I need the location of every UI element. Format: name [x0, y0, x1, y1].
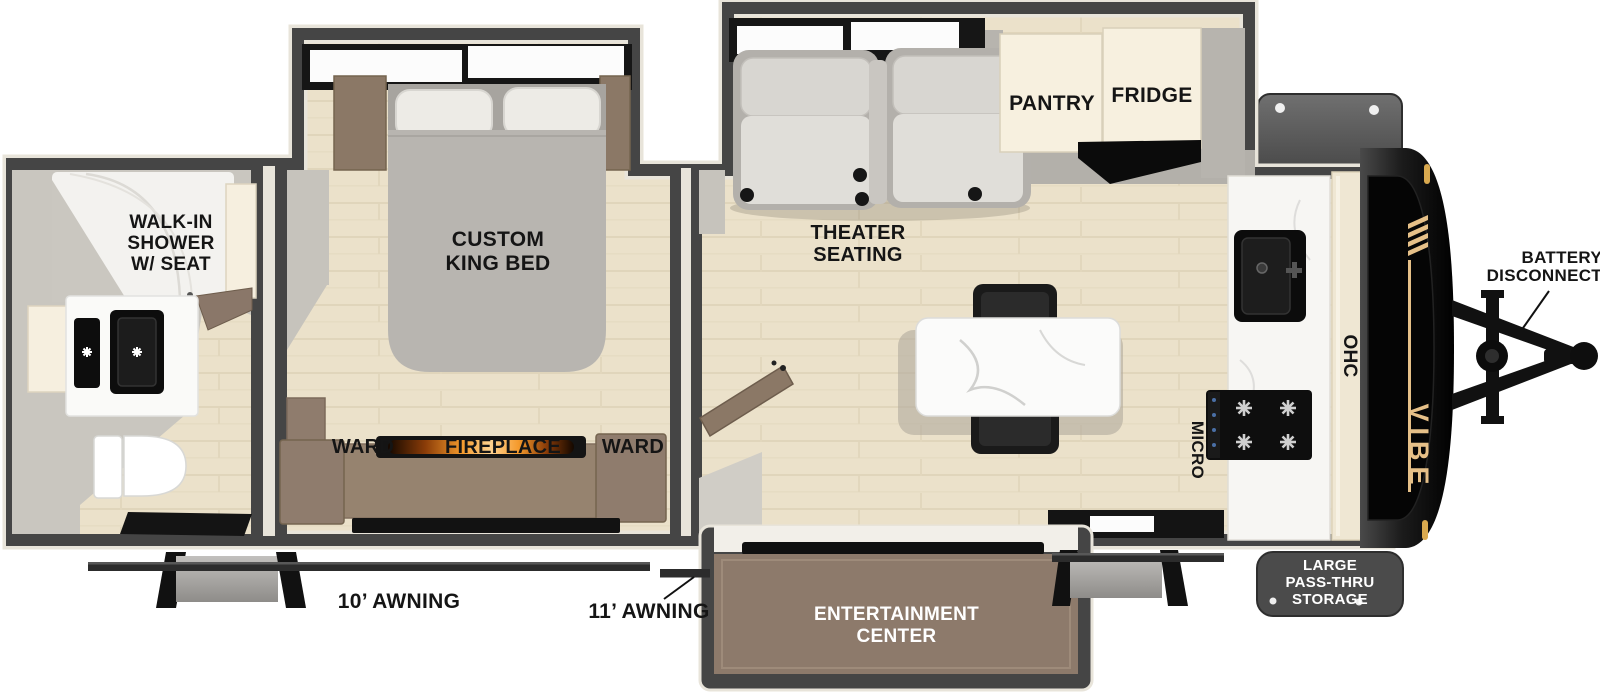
- ohc-label: OHC: [1340, 326, 1360, 386]
- ward-left-label: WARD: [328, 436, 398, 458]
- battery-disconnect-label: BATTERY DISCONNECT: [1470, 249, 1600, 285]
- fireplace-label: FIREPLACE: [440, 436, 566, 458]
- entertainment-center-label: ENTERTAINMENT CENTER: [794, 604, 999, 648]
- awning-11-label: 11’ AWNING: [569, 600, 729, 624]
- fridge-label: FRIDGE: [1104, 84, 1200, 108]
- micro-label: MICRO: [1186, 410, 1206, 490]
- theater-seats: [730, 48, 1031, 221]
- awning-10-label: 10’ AWNING: [309, 590, 489, 614]
- pantry-label: PANTRY: [1002, 92, 1102, 116]
- theater-seating-label: THEATER SEATING: [796, 222, 920, 266]
- large-pass-thru-storage-label: LARGE PASS-THRU STORAGE: [1262, 557, 1398, 608]
- ward-right-label: WARD: [598, 436, 668, 458]
- vibe-logo-text: VIBE: [1406, 381, 1434, 513]
- floorplan-image: WALK-IN SHOWER W/ SEAT CUSTOM KING BED W…: [0, 0, 1600, 697]
- walk-in-shower-label: WALK-IN SHOWER W/ SEAT: [96, 212, 246, 275]
- custom-king-bed-label: CUSTOM KING BED: [398, 228, 598, 276]
- hitch: [1452, 290, 1598, 424]
